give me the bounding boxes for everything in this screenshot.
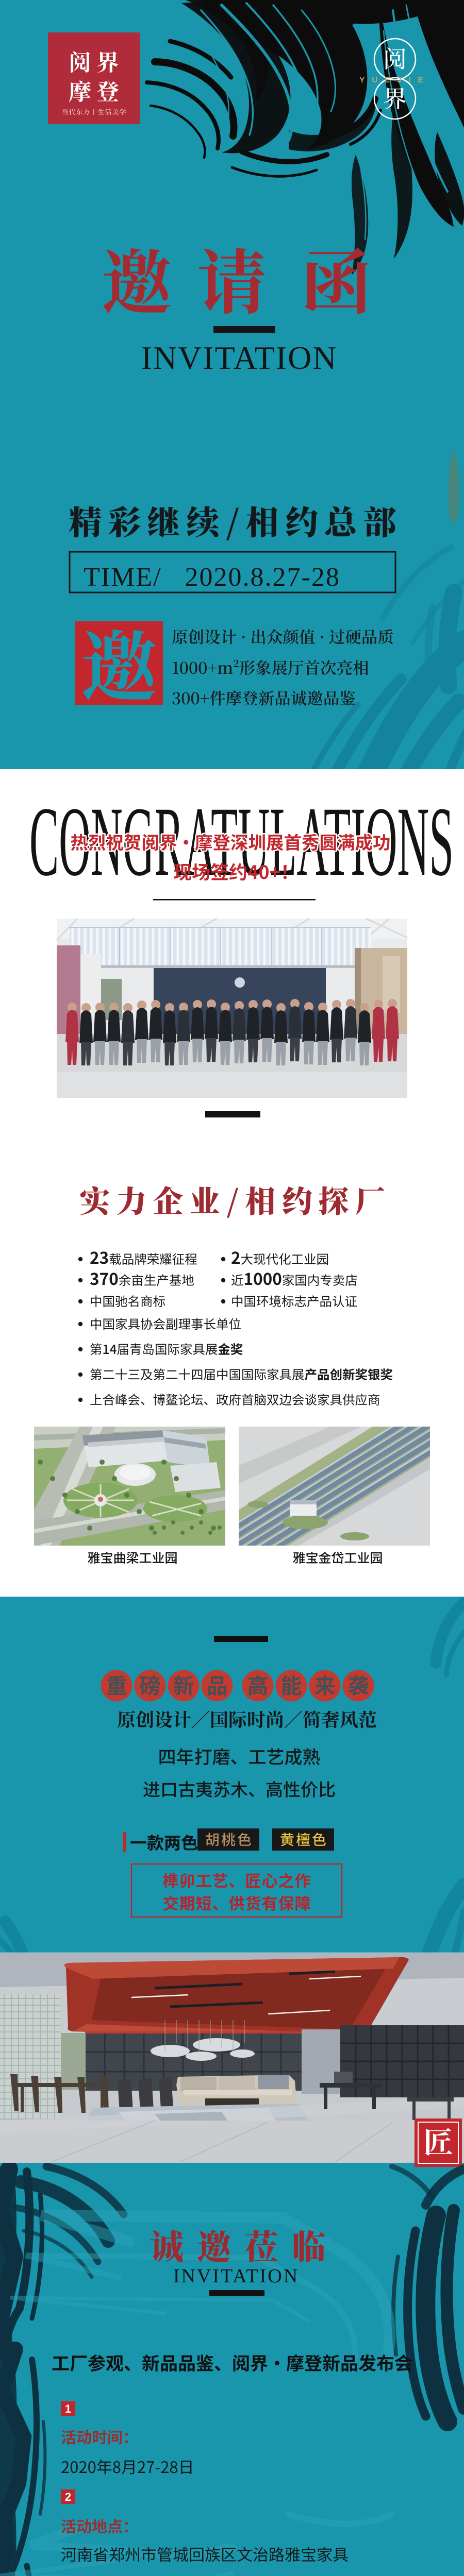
svg-text:INVITATION: INVITATION xyxy=(141,340,338,376)
svg-text:2: 2 xyxy=(65,2490,71,2503)
svg-text:YUEJIE: YUEJIE xyxy=(359,76,430,84)
svg-text:1: 1 xyxy=(65,2402,71,2415)
svg-text:INVITATION: INVITATION xyxy=(173,2265,299,2287)
svg-text:TIME/ 2020.8.27-28: TIME/ 2020.8.27-28 xyxy=(84,563,340,592)
